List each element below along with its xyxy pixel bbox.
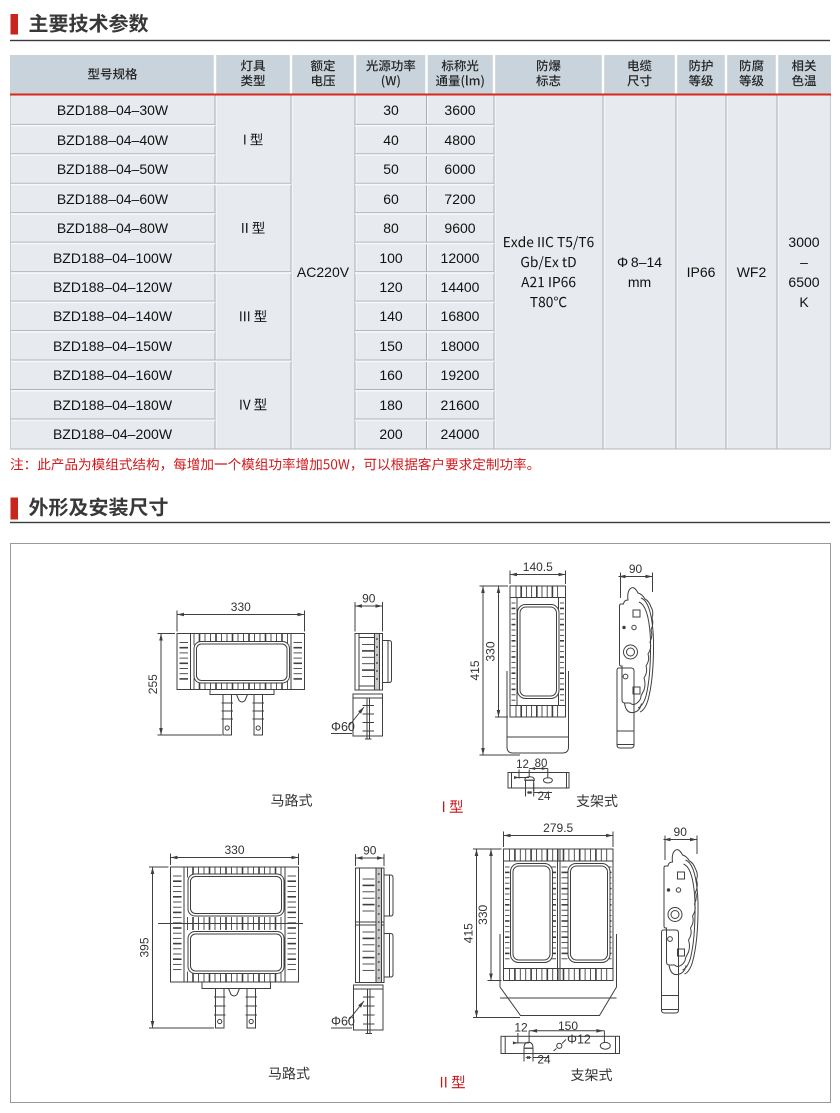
svg-text:279.5: 279.5 — [543, 821, 573, 835]
svg-text:90: 90 — [362, 592, 376, 606]
svg-text:90: 90 — [674, 825, 688, 839]
svg-text:415: 415 — [468, 660, 482, 680]
svg-text:330: 330 — [476, 904, 490, 924]
svg-text:Φ12: Φ12 — [567, 1033, 591, 1047]
svg-text:415: 415 — [462, 923, 476, 943]
svg-text:330: 330 — [231, 600, 251, 614]
svg-text:12: 12 — [516, 759, 529, 771]
svg-text:330: 330 — [484, 641, 498, 661]
svg-text:24: 24 — [537, 1053, 551, 1067]
svg-text:24: 24 — [538, 791, 551, 803]
svg-text:395: 395 — [138, 937, 152, 957]
svg-text:90: 90 — [629, 562, 643, 576]
svg-text:90: 90 — [363, 844, 377, 858]
svg-text:255: 255 — [146, 674, 160, 694]
svg-text:140.5: 140.5 — [523, 560, 553, 574]
svg-text:330: 330 — [224, 843, 244, 857]
svg-text:12: 12 — [514, 1021, 528, 1035]
